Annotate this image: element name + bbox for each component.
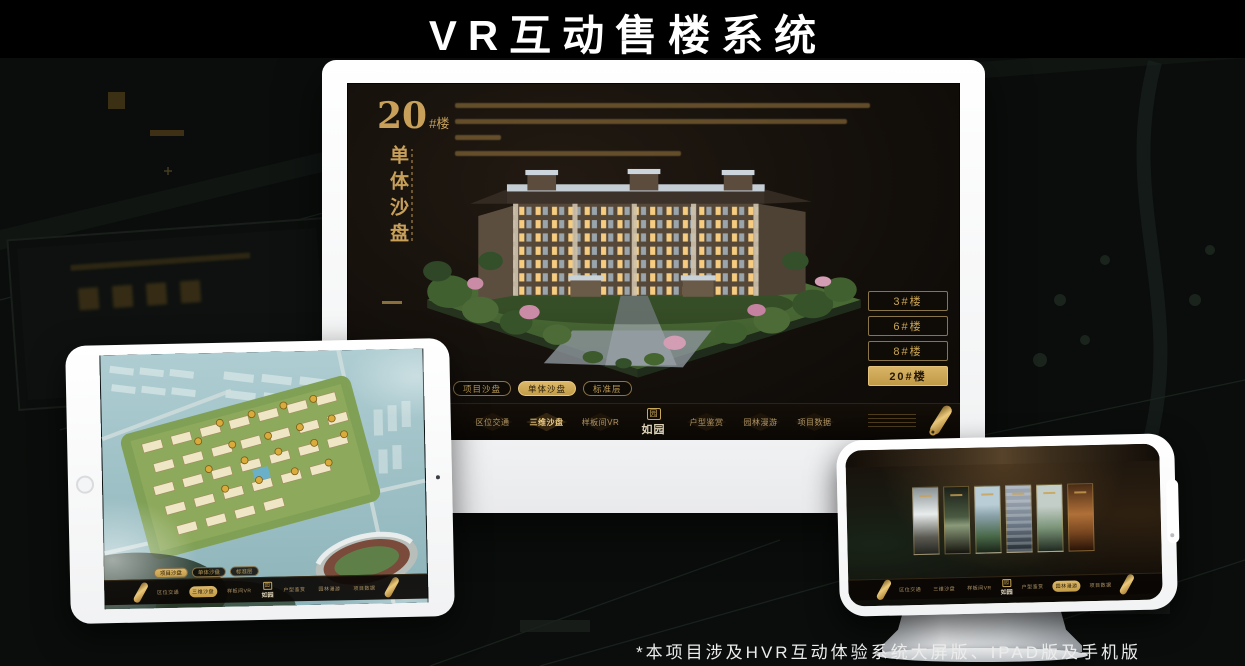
tablet-screen: 项目沙盘 单体沙盘 标准层 区位交通 三维沙盘 样板间VR 园 如园 户型鉴赏 … [99, 349, 428, 610]
poster-stage: VR互动售楼系统 20#楼 单体沙盘 [0, 0, 1245, 666]
page-title: VR互动售楼系统 [0, 2, 1245, 63]
floor-button-6[interactable]: 6#楼 [868, 316, 948, 336]
nav-item-model-room-vr[interactable]: 样板间VR [964, 582, 995, 594]
sandbox-tabs: 项目沙盘 单体沙盘 标准层 [453, 381, 632, 396]
home-button[interactable] [76, 475, 94, 493]
panorama-gallery [912, 483, 1094, 555]
aerial-masterplan-map[interactable] [99, 349, 428, 610]
plaque-characters-blurred [78, 280, 201, 310]
floor-button-8[interactable]: 8#楼 [868, 341, 948, 361]
nav-item-3d-sandbox[interactable]: 三维沙盘 [189, 585, 217, 597]
building-heading: 20#楼 [377, 95, 449, 137]
floor-button-20[interactable]: 20#楼 [868, 366, 948, 386]
footnote-text: *本项目涉及HVR互动体验系统大屏版、IPAD版及手机版 [636, 638, 1141, 663]
nav-item-project-data[interactable]: 项目数据 [1087, 579, 1115, 591]
nav-item-floorplans[interactable]: 户型鉴赏 [280, 584, 308, 596]
logo-seal-icon: 园 [647, 408, 661, 420]
scroll-icon-left [132, 581, 149, 604]
scroll-paper-lines [868, 414, 916, 430]
scroll-icon-left [875, 578, 892, 601]
phone-screen: 区位交通 三维沙盘 样板间VR 园 如园 户型鉴赏 园林漫游 项目数据 [845, 444, 1162, 607]
camera-icon [1170, 533, 1174, 537]
tab-project-sandbox[interactable]: 项目沙盘 [453, 381, 511, 396]
vertical-title-underline [382, 301, 402, 304]
nav-item-location[interactable]: 区位交通 [896, 583, 924, 595]
vertical-subtitle-decoration [411, 149, 413, 241]
nav-item-3d-sandbox[interactable]: 三维沙盘 [523, 407, 571, 437]
gallery-panel-facade[interactable] [1005, 484, 1033, 553]
nav-item-project-data[interactable]: 项目数据 [350, 582, 378, 594]
gallery-panel-exterior[interactable] [974, 485, 1002, 554]
building-model-3d[interactable] [419, 137, 869, 385]
logo-seal-icon: 园 [1002, 578, 1011, 586]
section-title-vertical: 单体沙盘 [384, 145, 411, 249]
app-logo[interactable]: 园 如园 [631, 408, 677, 437]
nav-item-location[interactable]: 区位交通 [469, 407, 517, 437]
gallery-panel-interior[interactable] [912, 487, 940, 556]
phone-notch [1166, 479, 1179, 543]
tab-single-sandbox[interactable]: 单体沙盘 [518, 381, 576, 396]
nav-item-garden-roam[interactable]: 园林漫游 [1053, 580, 1081, 592]
gallery-panel-garden[interactable] [943, 486, 971, 555]
floor-button-3[interactable]: 3#楼 [868, 291, 948, 311]
building-number-suffix: #楼 [429, 116, 449, 131]
tab-single-sandbox[interactable]: 单体沙盘 [192, 567, 226, 578]
nav-item-project-data[interactable]: 项目数据 [791, 407, 839, 437]
gallery-panel-lobby[interactable] [1067, 483, 1095, 552]
logo-seal-icon: 园 [263, 581, 272, 589]
logo-text: 如园 [261, 589, 273, 598]
nav-item-floorplans[interactable]: 户型鉴赏 [683, 407, 731, 437]
plaque-text-blurred [70, 252, 250, 271]
tablet-device: 项目沙盘 单体沙盘 标准层 区位交通 三维沙盘 样板间VR 园 如园 户型鉴赏 … [65, 338, 455, 624]
phone-device: 区位交通 三维沙盘 样板间VR 园 如园 户型鉴赏 园林漫游 项目数据 [836, 433, 1178, 617]
nav-item-floorplans[interactable]: 户型鉴赏 [1018, 581, 1046, 593]
scroll-icon-right [384, 576, 401, 599]
scroll-icon-right [1119, 573, 1136, 596]
floor-button-group: 3#楼 6#楼 8#楼 20#楼 [868, 291, 948, 391]
nav-item-3d-sandbox[interactable]: 三维沙盘 [930, 583, 958, 595]
nav-item-garden-roam[interactable]: 园林漫游 [737, 407, 785, 437]
tab-project-sandbox[interactable]: 项目沙盘 [154, 568, 188, 579]
building-number: 20 [377, 95, 427, 137]
phone-nav-bar: 区位交通 三维沙盘 样板间VR 园 如园 户型鉴赏 园林漫游 项目数据 [848, 572, 1162, 600]
logo-text: 如园 [1001, 586, 1013, 595]
gallery-panel-park[interactable] [1036, 484, 1064, 553]
app-logo[interactable]: 园 如园 [1000, 578, 1012, 595]
tab-standard-floor[interactable]: 标准层 [583, 381, 632, 396]
app-logo[interactable]: 园 如园 [261, 581, 273, 598]
nav-item-model-room-vr[interactable]: 样板间VR [224, 585, 255, 597]
nav-item-location[interactable]: 区位交通 [154, 586, 182, 598]
logo-text: 如园 [642, 421, 666, 437]
nav-item-model-room-vr[interactable]: 样板间VR [577, 407, 625, 437]
nav-item-garden-roam[interactable]: 园林漫游 [315, 583, 343, 595]
camera-icon [436, 475, 440, 479]
tab-standard-floor[interactable]: 标准层 [230, 566, 259, 577]
interior-ceiling-beam [845, 444, 1159, 468]
